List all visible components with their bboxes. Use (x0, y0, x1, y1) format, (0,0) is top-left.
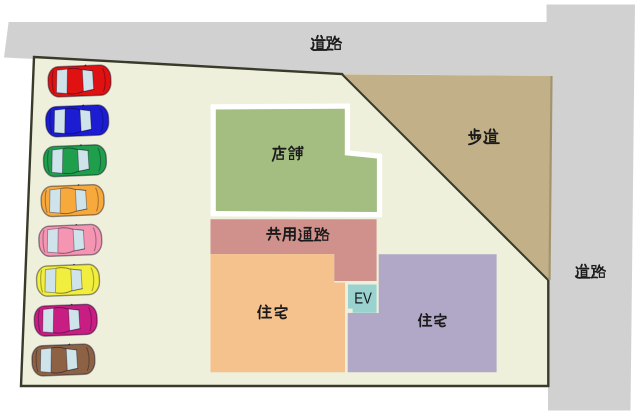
svg-text:EV: EV (354, 290, 372, 307)
